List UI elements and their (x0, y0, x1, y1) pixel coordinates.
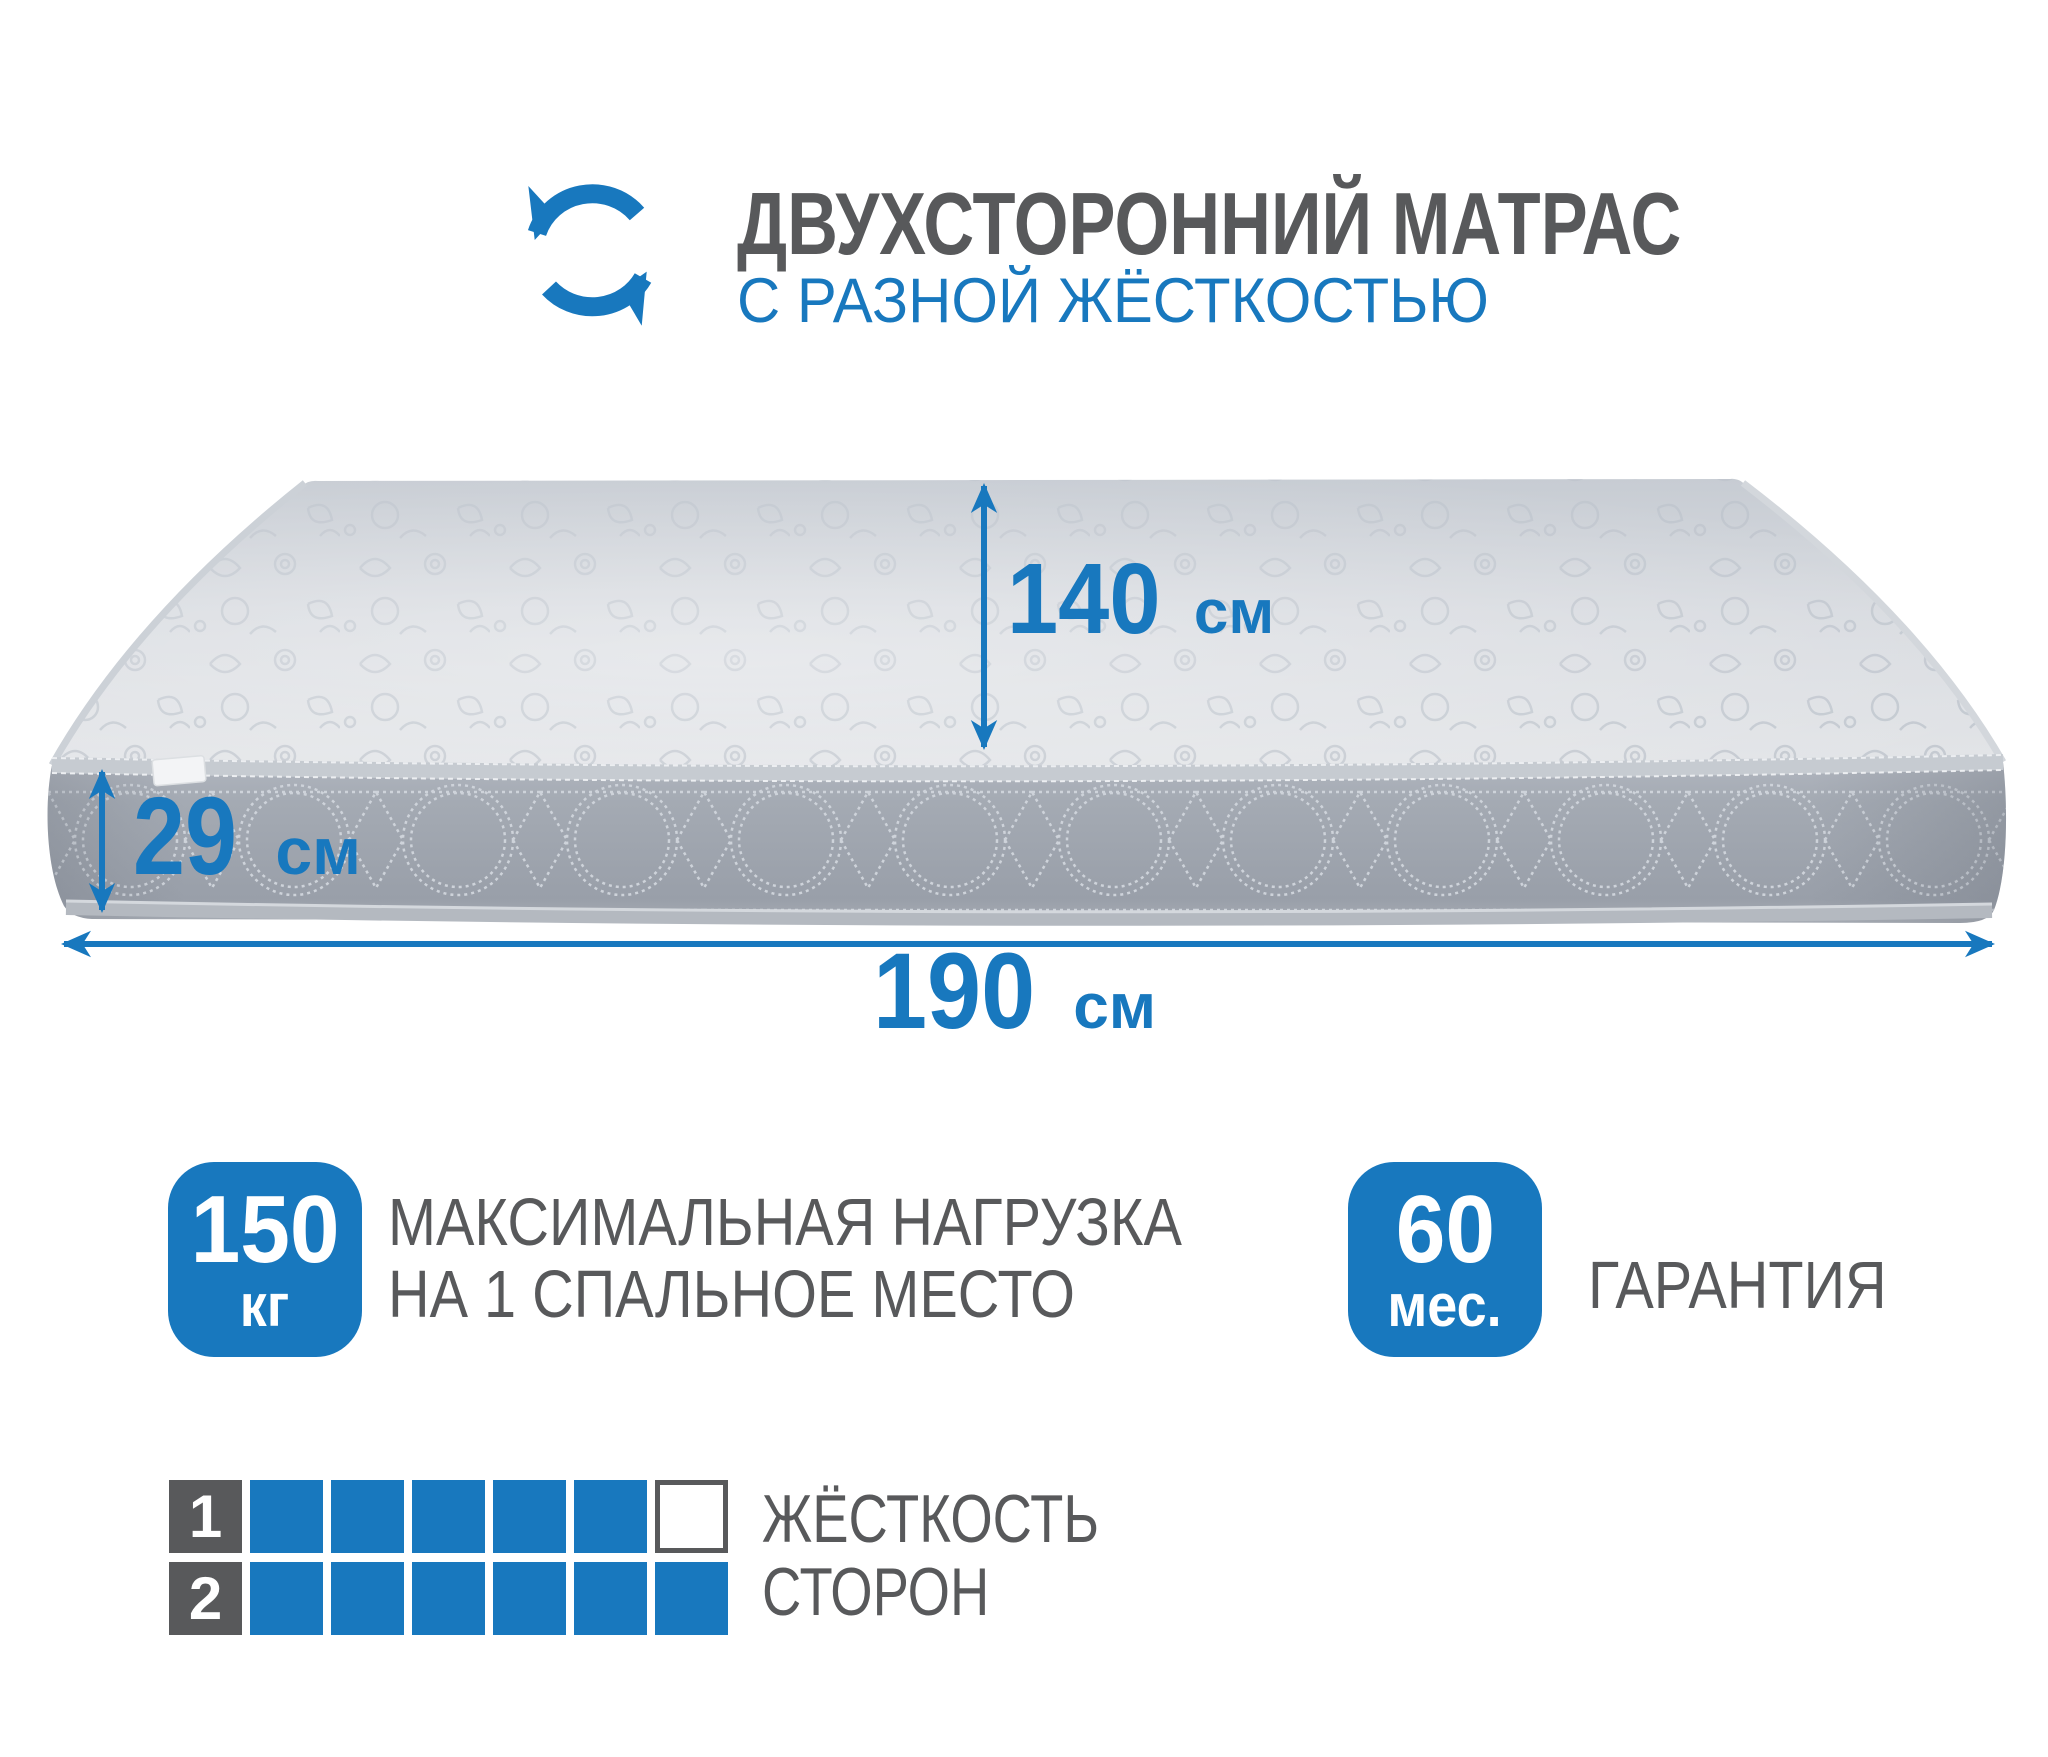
firmness-row-label: 2 (169, 1562, 242, 1635)
rotate-arc-bottom (549, 278, 643, 307)
max-load-unit: кг (240, 1276, 290, 1336)
warranty-value: 60 (1395, 1184, 1494, 1276)
height-value: 29 (133, 782, 237, 892)
firmness-cell-filled (574, 1480, 647, 1553)
max-load-caption-line2: НА 1 СПАЛЬНОЕ МЕСТО (388, 1259, 1075, 1331)
firmness-grid: 12 (169, 1480, 728, 1635)
length-unit: см (1073, 970, 1156, 1042)
max-load-caption: МАКСИМАЛЬНАЯ НАГРУЗКА НА 1 СПАЛЬНОЕ МЕСТ… (388, 1187, 1311, 1331)
max-load-caption-line1: МАКСИМАЛЬНАЯ НАГРУЗКА (388, 1187, 1182, 1259)
infographic-canvas: ДВУХСТОРОННИЙ МАТРАС С РАЗНОЙ ЖЁСТКОСТЬЮ (0, 0, 2048, 1757)
page-title: ДВУХСТОРОННИЙ МАТРАС (737, 180, 1917, 268)
firmness-cell-filled (574, 1562, 647, 1635)
page-title-text: ДВУХСТОРОННИЙ МАТРАС (737, 180, 1681, 268)
width-dimension-label: 140см (1007, 549, 1274, 649)
max-load-value: 150 (191, 1184, 340, 1276)
firmness-row-label: 1 (169, 1480, 242, 1553)
firmness-caption-line2: СТОРОН (762, 1556, 989, 1629)
firmness-caption: ЖЁСТКОСТЬ СТОРОН (762, 1483, 1183, 1629)
firmness-cell-filled (331, 1480, 404, 1553)
firmness-cell-filled (412, 1562, 485, 1635)
page-subtitle-text: С РАЗНОЙ ЖЁСТКОСТЬЮ (737, 270, 1489, 333)
firmness-caption-line1: ЖЁСТКОСТЬ (762, 1483, 1099, 1556)
rotate-arc-top (537, 194, 637, 233)
warranty-caption-line1: ГАРАНТИЯ (1588, 1250, 1887, 1322)
firmness-cell-filled (331, 1562, 404, 1635)
firmness-cell-filled (655, 1562, 728, 1635)
width-value: 140 (1007, 549, 1161, 649)
warranty-badge: 60 мес. (1348, 1162, 1542, 1357)
firmness-cell-filled (493, 1562, 566, 1635)
warranty-unit: мес. (1388, 1276, 1502, 1336)
firmness-cell-empty (655, 1480, 728, 1553)
firmness-cell-filled (250, 1562, 323, 1635)
firmness-cell-filled (250, 1480, 323, 1553)
rotate-arrows-icon (510, 176, 676, 326)
length-value: 190 (873, 937, 1035, 1045)
height-unit: см (275, 814, 361, 888)
width-unit: см (1194, 578, 1274, 647)
firmness-cell-filled (412, 1480, 485, 1553)
max-load-badge: 150 кг (168, 1162, 362, 1357)
page-subtitle: С РАЗНОЙ ЖЁСТКОСТЬЮ (737, 270, 1528, 333)
height-dimension-label: 29см (133, 782, 361, 892)
firmness-cell-filled (493, 1480, 566, 1553)
warranty-caption: ГАРАНТИЯ (1588, 1250, 1935, 1322)
length-dimension-label: 190см (873, 937, 1156, 1045)
